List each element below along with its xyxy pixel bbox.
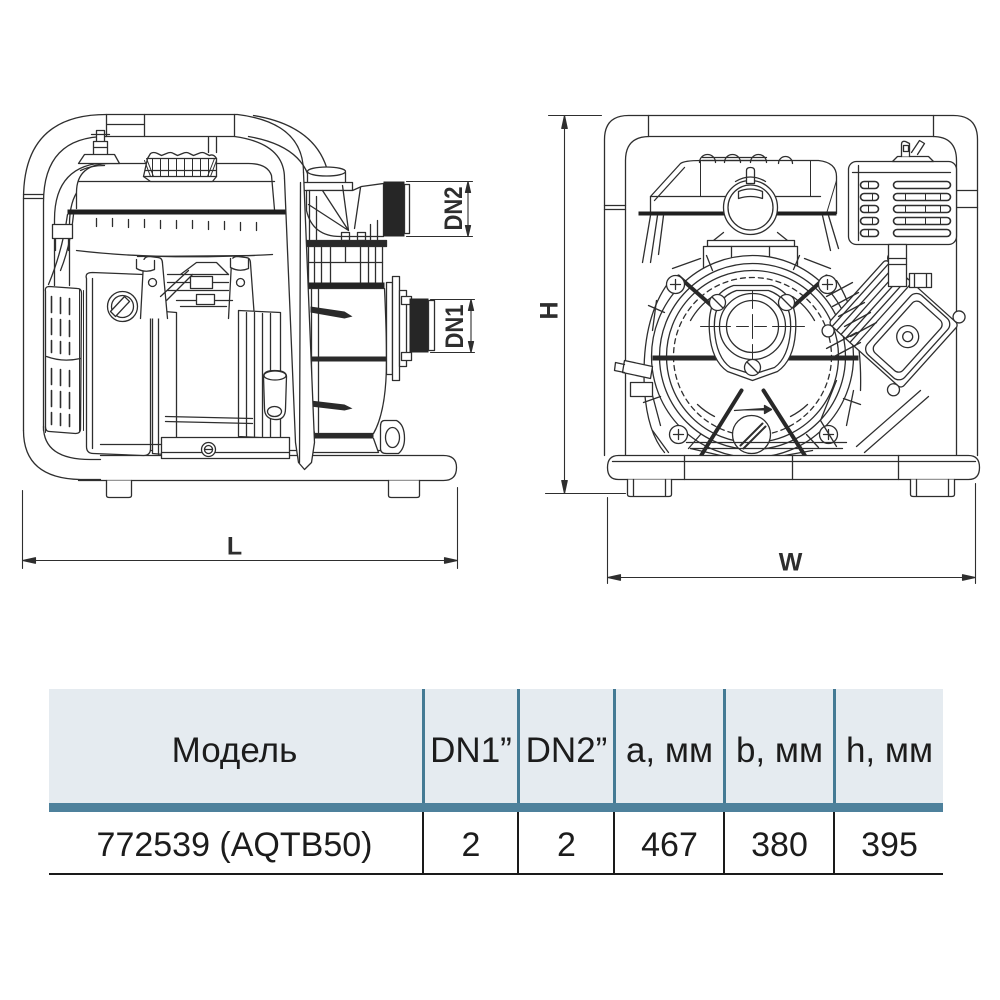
svg-text:W: W [779, 549, 803, 577]
svg-text:H: H [536, 301, 564, 319]
svg-text:L: L [227, 533, 242, 561]
svg-text:DN1: DN1 [441, 304, 469, 348]
svg-text:DN2: DN2 [440, 187, 468, 231]
